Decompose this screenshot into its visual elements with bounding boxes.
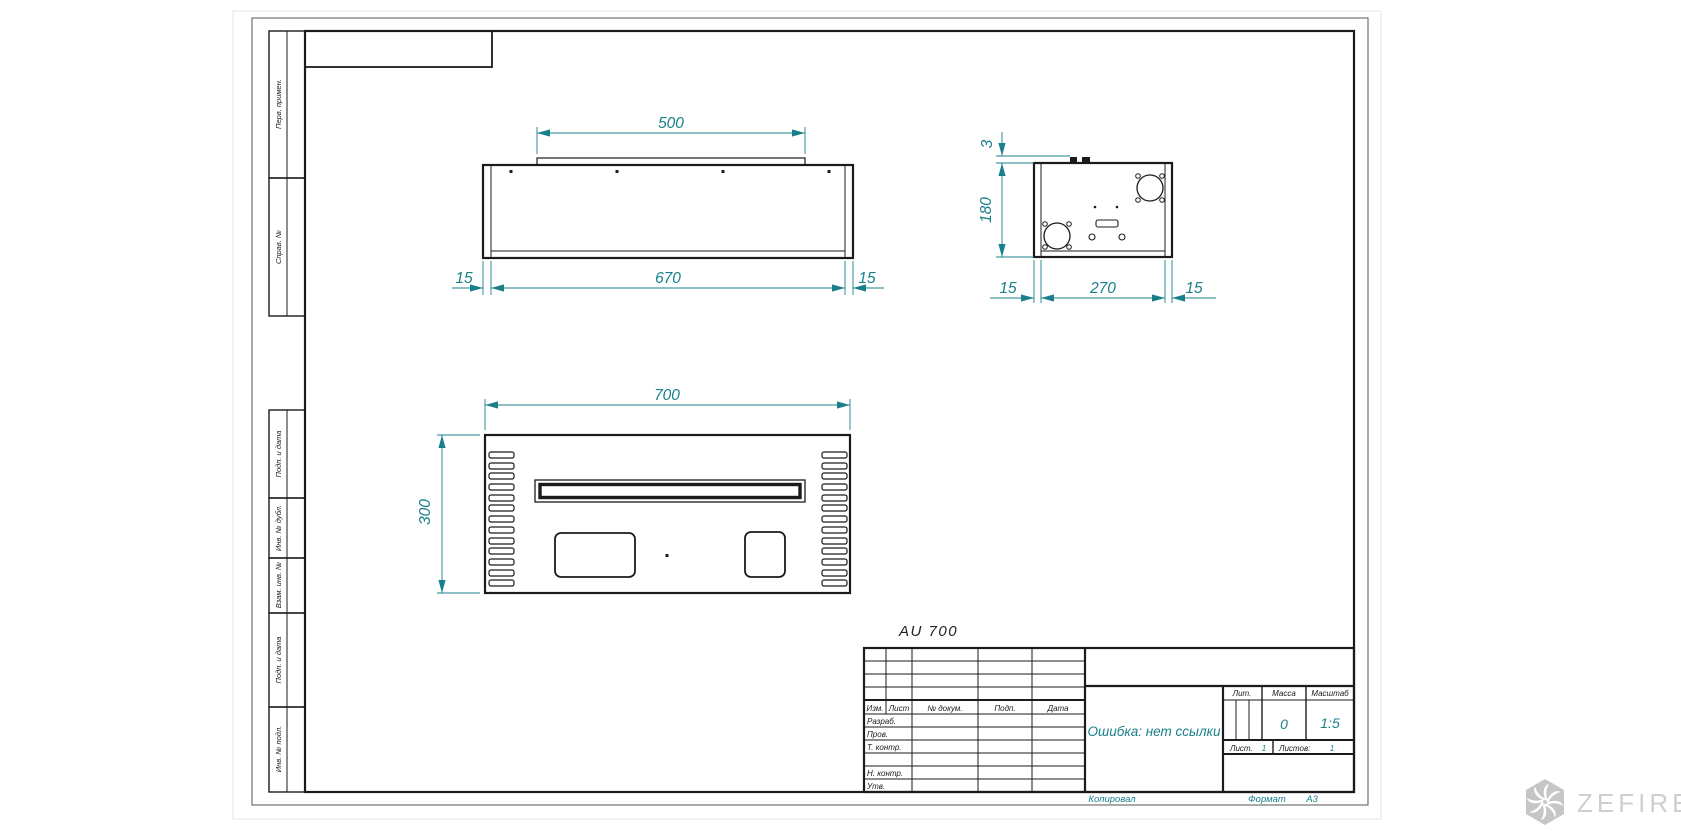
tb-col-dokum: № докум. — [927, 704, 962, 713]
sheet-borders — [233, 11, 1381, 819]
dim-side-height: 180 — [978, 197, 995, 223]
model-label: AU 700 — [898, 623, 958, 640]
margin-label-inv-dubl: Инв. № дубл. — [274, 505, 283, 551]
side-pin-hole — [1094, 206, 1097, 209]
tb-row-razrab: Разраб. — [867, 717, 896, 726]
dim-side-depth: 270 — [1089, 280, 1116, 297]
dim-front-width: 670 — [655, 270, 681, 287]
tb-copied-label: Копировал — [1088, 794, 1136, 805]
side-top-tab — [1070, 157, 1077, 163]
tb-sheets-label: Листов: — [1278, 744, 1310, 753]
margin-label-vzam-inv: Взам. инв. № — [274, 562, 283, 608]
tb-format-label: Формат — [1248, 794, 1286, 805]
dim-side-right: 15 — [1185, 280, 1203, 297]
front-screw-dot — [828, 170, 831, 173]
tb-mass-value: 0 — [1280, 716, 1288, 732]
tb-sheets-value: 1 — [1330, 744, 1334, 753]
dim-front-right: 15 — [858, 270, 876, 287]
tb-scale-value: 1:5 — [1320, 715, 1340, 731]
tb-sheet-value: 1 — [1262, 744, 1266, 753]
tb-col-data: Дата — [1046, 704, 1069, 713]
tb-name-error: Ошибка: нет ссылки — [1088, 724, 1221, 739]
front-screw-dot — [722, 170, 725, 173]
tb-row-nkontr: Н. контр. — [867, 769, 903, 778]
dim-plan-depth: 300 — [417, 499, 434, 525]
front-screw-dot — [616, 170, 619, 173]
tb-row-tkontr: Т. контр. — [867, 743, 902, 752]
tb-scale-label: Масштаб — [1311, 689, 1349, 698]
plan-center-dot — [666, 554, 669, 557]
tb-row-utv: Утв. — [866, 782, 885, 791]
zefire-brand-text: ZEFIRE — [1577, 788, 1681, 818]
dim-front-top: 500 — [658, 115, 684, 132]
tb-lit-label: Лит. — [1232, 689, 1252, 698]
margin-label-podp-data-1: Подп. и дата — [274, 431, 283, 478]
margin-label-sprav-no: Справ. № — [274, 230, 283, 264]
tb-col-izm: Изм. — [866, 704, 883, 713]
side-pin-hole — [1116, 206, 1119, 209]
tb-col-podp: Подп. — [994, 704, 1015, 713]
tb-sheet-label: Лист. — [1229, 744, 1253, 753]
margin-label-perv-primen: Перв. примен. — [274, 79, 283, 129]
tb-col-list: Лист — [888, 704, 910, 713]
dim-front-left: 15 — [455, 270, 473, 287]
dim-plan-width: 700 — [654, 387, 680, 404]
zefire-watermark: ZEFIRE — [1526, 779, 1681, 825]
drawing-sheet-svg: Перв. примен. Справ. № Подп. и дата Инв.… — [0, 0, 1681, 831]
dim-side-flange: 3 — [979, 139, 996, 148]
tb-mass-label: Масса — [1272, 689, 1296, 698]
dim-side-left: 15 — [999, 280, 1017, 297]
margin-label-inv-podl: Инв. № подл. — [274, 726, 283, 773]
drawing-page: Перв. примен. Справ. № Подп. и дата Инв.… — [0, 0, 1681, 831]
tb-format-value: А3 — [1305, 794, 1318, 805]
margin-label-podp-data-2: Подп. и дата — [274, 637, 283, 684]
side-top-tab — [1082, 157, 1090, 163]
front-screw-dot — [510, 170, 513, 173]
tb-row-prov: Пров. — [867, 730, 888, 739]
